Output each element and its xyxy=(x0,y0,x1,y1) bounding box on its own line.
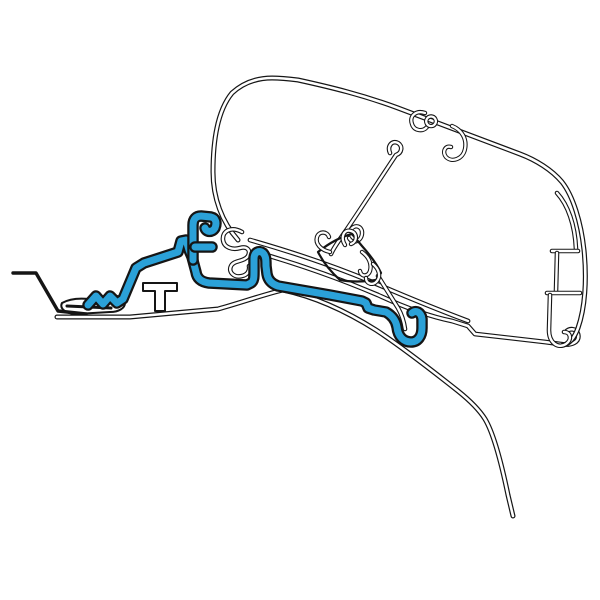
rib-wall-lower xyxy=(549,295,570,346)
case-bottom-edge xyxy=(250,240,468,321)
rib-wall-upper xyxy=(556,253,557,291)
t-bracket xyxy=(143,283,177,311)
rafter-bracket-hook-upper xyxy=(360,252,371,276)
van-roof-contour xyxy=(57,290,513,516)
awning-adapter-diagram xyxy=(0,0,600,600)
adapter-bracket-stem xyxy=(193,216,216,260)
awning-adapter-illustration xyxy=(0,0,600,600)
rafter-bracket-fork-left xyxy=(317,233,330,253)
